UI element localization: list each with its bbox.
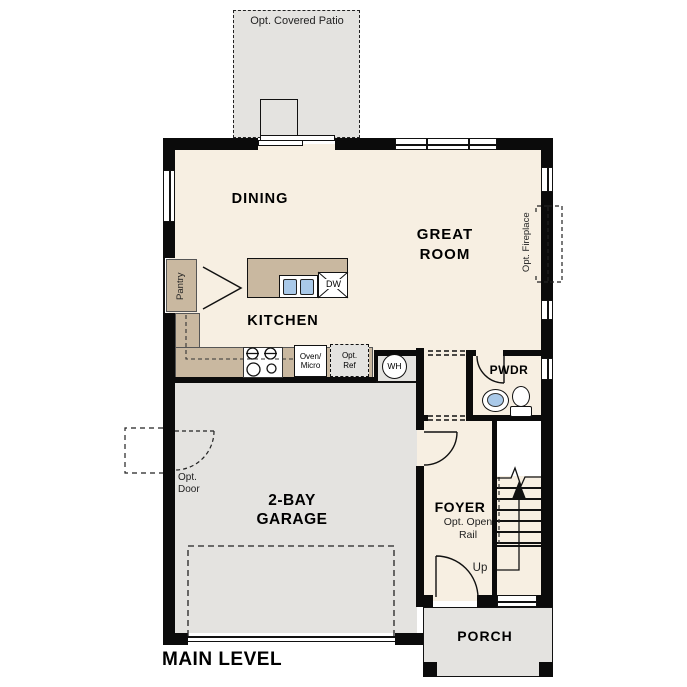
wall-segment	[541, 320, 553, 358]
wall-segment	[163, 258, 165, 313]
wall-segment	[395, 633, 424, 645]
wall-segment	[163, 313, 175, 645]
wall-segment	[477, 595, 497, 607]
opt-ref-box: Opt. Ref	[330, 344, 369, 377]
wall-segment	[163, 633, 188, 645]
wall-segment	[163, 138, 175, 170]
garage-label: 2-BAY	[232, 492, 352, 509]
great-room-label: GREAT	[385, 227, 505, 244]
pwdr-sink-basin	[487, 393, 504, 407]
toilet-tank	[510, 406, 532, 417]
water-heater-label: WH	[387, 362, 401, 371]
wall-segment	[541, 138, 553, 167]
opt-door-landing	[125, 428, 163, 473]
stair-tread	[497, 545, 541, 547]
wall-segment	[537, 595, 553, 607]
wall-segment	[374, 350, 378, 383]
wall-segment	[376, 381, 416, 383]
garage-door	[188, 641, 395, 642]
pwdr-label: PWDR	[459, 364, 559, 377]
oven-micro-box: Oven/ Micro	[294, 345, 327, 377]
porch-label: PORCH	[425, 629, 545, 644]
opt-ref-label: Ref	[343, 361, 355, 370]
opt-door-label: Opt.	[178, 472, 197, 483]
opt-fireplace-label: Opt. Fireplace	[522, 192, 532, 292]
wall-segment	[335, 138, 395, 150]
wall-segment	[541, 380, 553, 607]
oven-micro-label: Oven/	[300, 352, 321, 361]
patio-structure	[260, 99, 298, 137]
window	[497, 595, 537, 607]
wall-segment	[163, 222, 175, 258]
opt-open-rail-label: Opt. Open	[418, 517, 518, 529]
kitchen-label: KITCHEN	[223, 314, 343, 330]
kitchen-sink-basin	[283, 279, 297, 295]
garage-door	[188, 636, 395, 638]
opt-door-label: Door	[178, 484, 200, 495]
stairwell-void	[497, 421, 541, 476]
patio-label: Opt. Covered Patio	[217, 15, 377, 27]
foyer-label: FOYER	[410, 500, 510, 515]
window	[395, 138, 497, 150]
stove-cooktop	[243, 347, 283, 378]
wall-segment	[416, 415, 428, 421]
sliding-door-panel	[258, 140, 303, 146]
window	[163, 170, 175, 222]
window	[541, 300, 553, 320]
plan-title: MAIN LEVEL	[162, 650, 282, 671]
kitchen-sink-basin	[300, 279, 314, 295]
toilet-bowl	[512, 386, 530, 407]
up-label: Up	[462, 562, 498, 575]
stair-tread	[497, 542, 541, 544]
wall-segment	[503, 350, 541, 356]
floor-plan: Oven/ Micro Opt. Ref WH	[0, 0, 687, 687]
great-room-label: ROOM	[385, 247, 505, 264]
oven-micro-label: Micro	[301, 361, 321, 370]
porch-post	[423, 662, 437, 677]
window	[541, 167, 553, 192]
opt-ref-label: Opt.	[342, 351, 357, 360]
dishwasher-label: DW	[320, 280, 347, 290]
porch-post	[539, 662, 553, 677]
wall-segment	[423, 595, 433, 607]
water-heater: WH	[382, 354, 407, 379]
wall-segment	[541, 192, 553, 300]
opt-open-rail-label: Rail	[418, 530, 518, 542]
dining-label: DINING	[200, 192, 320, 208]
stair-tread	[497, 487, 541, 489]
pantry-label: Pantry	[176, 258, 186, 314]
wall-segment	[163, 138, 258, 150]
garage-label: GARAGE	[232, 511, 352, 528]
